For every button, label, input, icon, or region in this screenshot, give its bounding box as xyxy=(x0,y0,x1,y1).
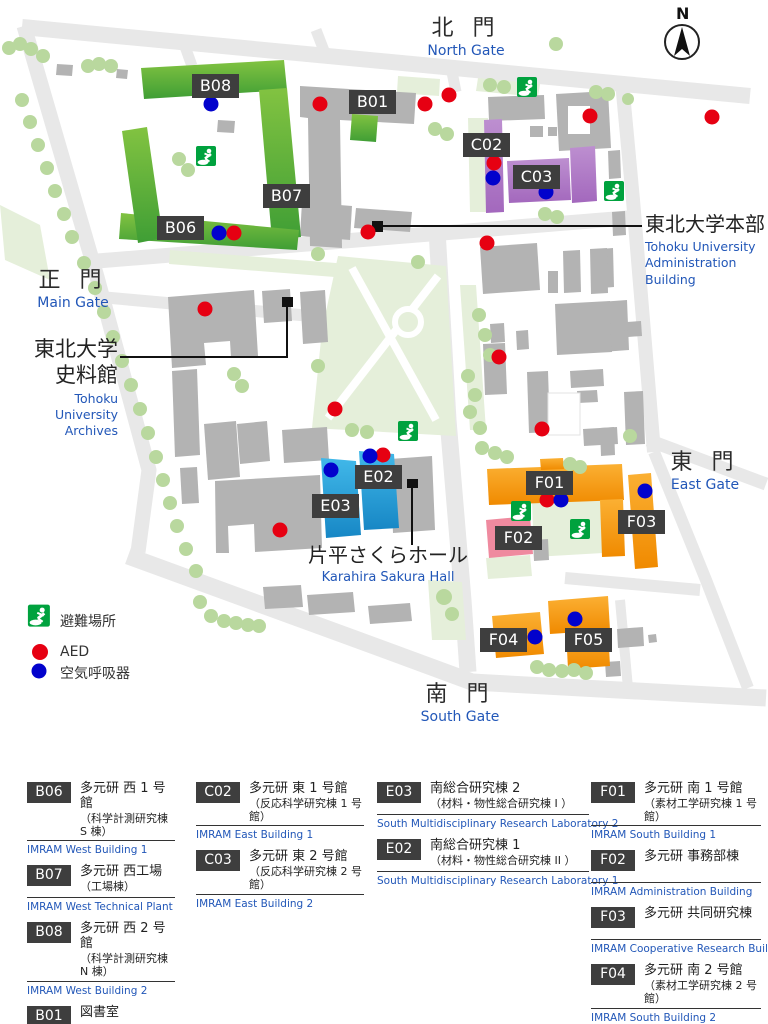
directory-entry: C02 多元研 東 1 号館 （反応科学研究棟 1 号館） IMRAM East… xyxy=(196,782,364,841)
directory-name-en: IMRAM West Technical Plant xyxy=(27,897,175,913)
directory-name-ja: 南総合研究棟 1 xyxy=(430,839,589,854)
legend-evacuation-label: 避難場所 xyxy=(60,611,116,631)
directory-name-ja-sub: （材料・物性総合研究棟 I ） xyxy=(430,797,589,810)
directory-code: C03 xyxy=(196,850,240,871)
directory-name-ja: 多元研 事務部棟 xyxy=(644,850,761,865)
directory-name-ja-sub: （素材工学研究棟 1 号館） xyxy=(644,797,761,823)
sakura-hall-annotation: 片平さくらホール Karahira Sakura Hall xyxy=(288,543,488,587)
map-chip-c03: C03 xyxy=(513,165,560,189)
map-chip-f03: F03 xyxy=(618,510,665,534)
directory-name-ja: 図書室 xyxy=(80,1006,175,1021)
admin-building-annotation: 東北大学本部 Tohoku University Administration … xyxy=(645,212,768,288)
archives-annotation-en1: Tohoku University xyxy=(8,391,118,424)
directory-name-ja: 多元研 西工場 xyxy=(80,865,175,880)
directory-entry: F03 多元研 共同研究棟 IMRAM Cooperative Research… xyxy=(591,907,761,955)
directory-entry: E03 南総合研究棟 2 （材料・物性総合研究棟 I ） South Multi… xyxy=(377,782,589,830)
map-chip-b08: B08 xyxy=(192,74,239,98)
directory-code: E03 xyxy=(377,782,421,803)
directory-code: E02 xyxy=(377,839,421,860)
admin-annotation-en1: Tohoku University xyxy=(645,239,768,255)
directory-name-en: IMRAM West Building 1 xyxy=(27,840,175,856)
directory-name-en: IMRAM Administration Building xyxy=(591,882,761,898)
map-chip-f02: F02 xyxy=(495,526,542,550)
directory-name-en: IMRAM East Building 1 xyxy=(196,825,364,841)
directory-name-ja: 多元研 南 2 号館 xyxy=(644,964,761,979)
directory-code: F02 xyxy=(591,850,635,871)
main-gate-label: 正 門 Main Gate xyxy=(26,262,120,311)
directory-entry: F04 多元研 南 2 号館 （素材工学研究棟 2 号館） IMRAM Sout… xyxy=(591,964,761,1023)
east-gate-label: 東 門 East Gate xyxy=(652,444,758,493)
directory-name-ja: 多元研 共同研究棟 xyxy=(644,907,761,922)
directory-entry: E02 南総合研究棟 1 （材料・物性総合研究棟 II ） South Mult… xyxy=(377,839,589,887)
directory-name-ja: 多元研 西 2 号館 xyxy=(80,922,175,952)
directory-name-ja-sub: （材料・物性総合研究棟 II ） xyxy=(430,854,589,867)
directory-code: B07 xyxy=(27,865,71,886)
directory-name-en: South Multidisciplinary Research Laborat… xyxy=(377,814,589,830)
directory-code: B08 xyxy=(27,922,71,943)
directory-name-ja-sub: （科学計測研究棟 N 棟） xyxy=(80,952,175,978)
directory-name-ja-sub: （科学計測研究棟 S 棟） xyxy=(80,812,175,838)
directory-entry: B07 多元研 西工場 （工場棟） IMRAM West Technical P… xyxy=(27,865,175,913)
directory-column-b: B06 多元研 西 1 号館 （科学計測研究棟 S 棟） IMRAM West … xyxy=(27,782,175,1024)
directory-name-ja-sub: （工場棟） xyxy=(80,880,175,893)
campus-map-page: N 北 門 North Gate 正 門 Main Gate 東 門 East … xyxy=(0,0,768,1024)
directory-name-ja-sub: （素材工学研究棟 2 号館） xyxy=(644,979,761,1005)
admin-annotation-en2: Administration Building xyxy=(645,255,768,288)
court-outline xyxy=(548,393,580,435)
legend-respirator-label: 空気呼吸器 xyxy=(60,663,130,683)
south-gate-label: 南 門 South Gate xyxy=(406,676,514,725)
campus-map: N 北 門 North Gate 正 門 Main Gate 東 門 East … xyxy=(0,0,768,745)
directory-name-en: IMRAM South Building 2 xyxy=(591,1008,761,1024)
directory-code: F01 xyxy=(591,782,635,803)
directory-entry: F02 多元研 事務部棟 IMRAM Administration Buildi… xyxy=(591,850,761,898)
map-chip-f04: F04 xyxy=(480,628,527,652)
legend-aed-label: AED xyxy=(60,644,89,660)
directory-name-en: IMRAM East Building 2 xyxy=(196,894,364,910)
map-chip-e03: E03 xyxy=(312,494,359,518)
directory-entry: B06 多元研 西 1 号館 （科学計測研究棟 S 棟） IMRAM West … xyxy=(27,782,175,856)
directory-name-en: IMRAM West Building 2 xyxy=(27,981,175,997)
directory-entry: B01 図書室 Library (AIMR Main Building 2F) xyxy=(27,1006,175,1024)
directory-name-en: IMRAM South Building 1 xyxy=(591,825,761,841)
map-chip-c02: C02 xyxy=(463,133,510,157)
map-chip-e02: E02 xyxy=(355,465,402,489)
legend-respirator-icon xyxy=(32,664,47,679)
directory-name-en: South Multidisciplinary Research Laborat… xyxy=(377,871,589,887)
directory-code: B06 xyxy=(27,782,71,803)
legend-icons xyxy=(28,605,50,679)
directory-column-f: F01 多元研 南 1 号館 （素材工学研究棟 1 号館） IMRAM Sout… xyxy=(591,782,761,1024)
directory-code: F04 xyxy=(591,964,635,985)
map-chip-b07: B07 xyxy=(263,184,310,208)
map-chip-b06: B06 xyxy=(157,216,204,240)
directory-column-e: E03 南総合研究棟 2 （材料・物性総合研究棟 I ） South Multi… xyxy=(377,782,589,896)
directory-name-ja: 南総合研究棟 2 xyxy=(430,782,589,797)
building-directory: B06 多元研 西 1 号館 （科学計測研究棟 S 棟） IMRAM West … xyxy=(0,782,768,1024)
directory-name-ja: 多元研 南 1 号館 xyxy=(644,782,761,797)
directory-name-ja-sub: （反応科学研究棟 1 号館） xyxy=(249,797,364,823)
directory-code: C02 xyxy=(196,782,240,803)
directory-name-ja: 多元研 西 1 号館 xyxy=(80,782,175,812)
compass-icon xyxy=(665,25,699,59)
directory-name-ja: 多元研 東 2 号館 xyxy=(249,850,364,865)
archives-annotation-en2: Archives xyxy=(8,423,118,439)
compass-north-label: N xyxy=(676,4,689,23)
directory-entry: B08 多元研 西 2 号館 （科学計測研究棟 N 棟） IMRAM West … xyxy=(27,922,175,996)
map-chip-f05: F05 xyxy=(565,628,612,652)
directory-column-c: C02 多元研 東 1 号館 （反応科学研究棟 1 号館） IMRAM East… xyxy=(196,782,364,919)
directory-entry: C03 多元研 東 2 号館 （反応科学研究棟 2 号館） IMRAM East… xyxy=(196,850,364,909)
directory-code: B01 xyxy=(27,1006,71,1024)
directory-name-ja: 多元研 東 1 号館 xyxy=(249,782,364,797)
directory-name-en: IMRAM Cooperative Research Building xyxy=(591,939,761,955)
map-chip-f01: F01 xyxy=(526,471,573,495)
north-gate-label: 北 門 North Gate xyxy=(408,10,524,59)
map-chip-b01: B01 xyxy=(349,90,396,114)
directory-entry: F01 多元研 南 1 号館 （素材工学研究棟 1 号館） IMRAM Sout… xyxy=(591,782,761,841)
archives-annotation: 東北大学 史料館 Tohoku University Archives xyxy=(8,336,118,439)
legend-aed-icon xyxy=(32,644,48,660)
directory-name-ja-sub: （反応科学研究棟 2 号館） xyxy=(249,865,364,891)
directory-code: F03 xyxy=(591,907,635,928)
